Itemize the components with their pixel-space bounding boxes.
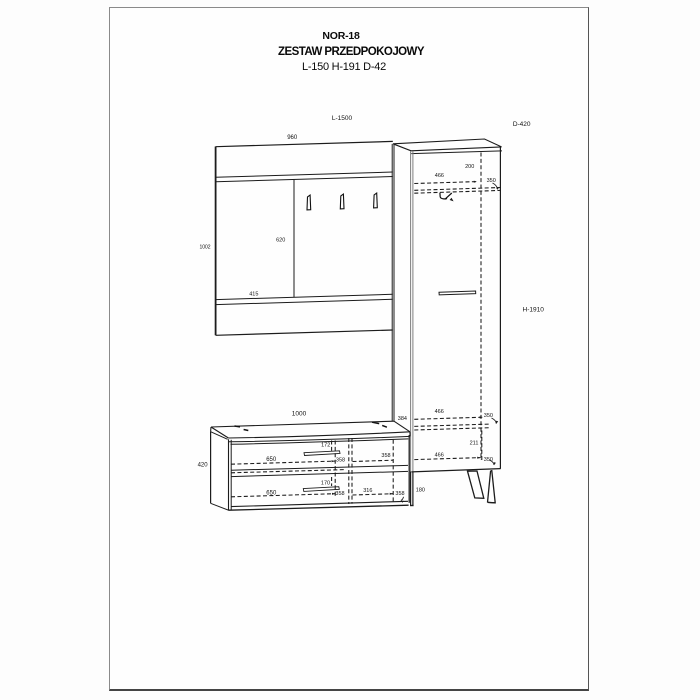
svg-text:316: 316 — [363, 488, 372, 494]
svg-text:1002: 1002 — [199, 244, 210, 250]
svg-text:H-1910: H-1910 — [523, 307, 545, 314]
svg-text:650: 650 — [266, 457, 277, 463]
svg-text:415: 415 — [249, 291, 258, 297]
svg-text:650: 650 — [266, 491, 277, 497]
svg-text:350: 350 — [484, 457, 493, 463]
svg-text:350: 350 — [487, 178, 496, 184]
svg-text:420: 420 — [198, 462, 209, 468]
svg-text:211: 211 — [470, 440, 479, 446]
svg-text:L-1500: L-1500 — [332, 115, 353, 122]
svg-text:466: 466 — [435, 453, 444, 459]
svg-text:466: 466 — [435, 173, 444, 179]
svg-text:384: 384 — [398, 416, 407, 422]
svg-text:D-420: D-420 — [513, 121, 531, 128]
svg-text:358: 358 — [336, 458, 345, 464]
svg-text:358: 358 — [335, 491, 344, 497]
svg-text:358: 358 — [381, 453, 390, 459]
svg-text:358: 358 — [395, 491, 404, 497]
svg-text:170: 170 — [321, 480, 330, 486]
svg-text:466: 466 — [435, 409, 444, 415]
svg-text:172: 172 — [321, 442, 330, 448]
svg-text:1000: 1000 — [292, 411, 307, 418]
svg-text:200: 200 — [465, 164, 474, 170]
svg-text:960: 960 — [287, 135, 298, 141]
svg-text:620: 620 — [276, 238, 285, 244]
svg-text:350: 350 — [484, 413, 493, 419]
svg-text:180: 180 — [416, 487, 425, 493]
